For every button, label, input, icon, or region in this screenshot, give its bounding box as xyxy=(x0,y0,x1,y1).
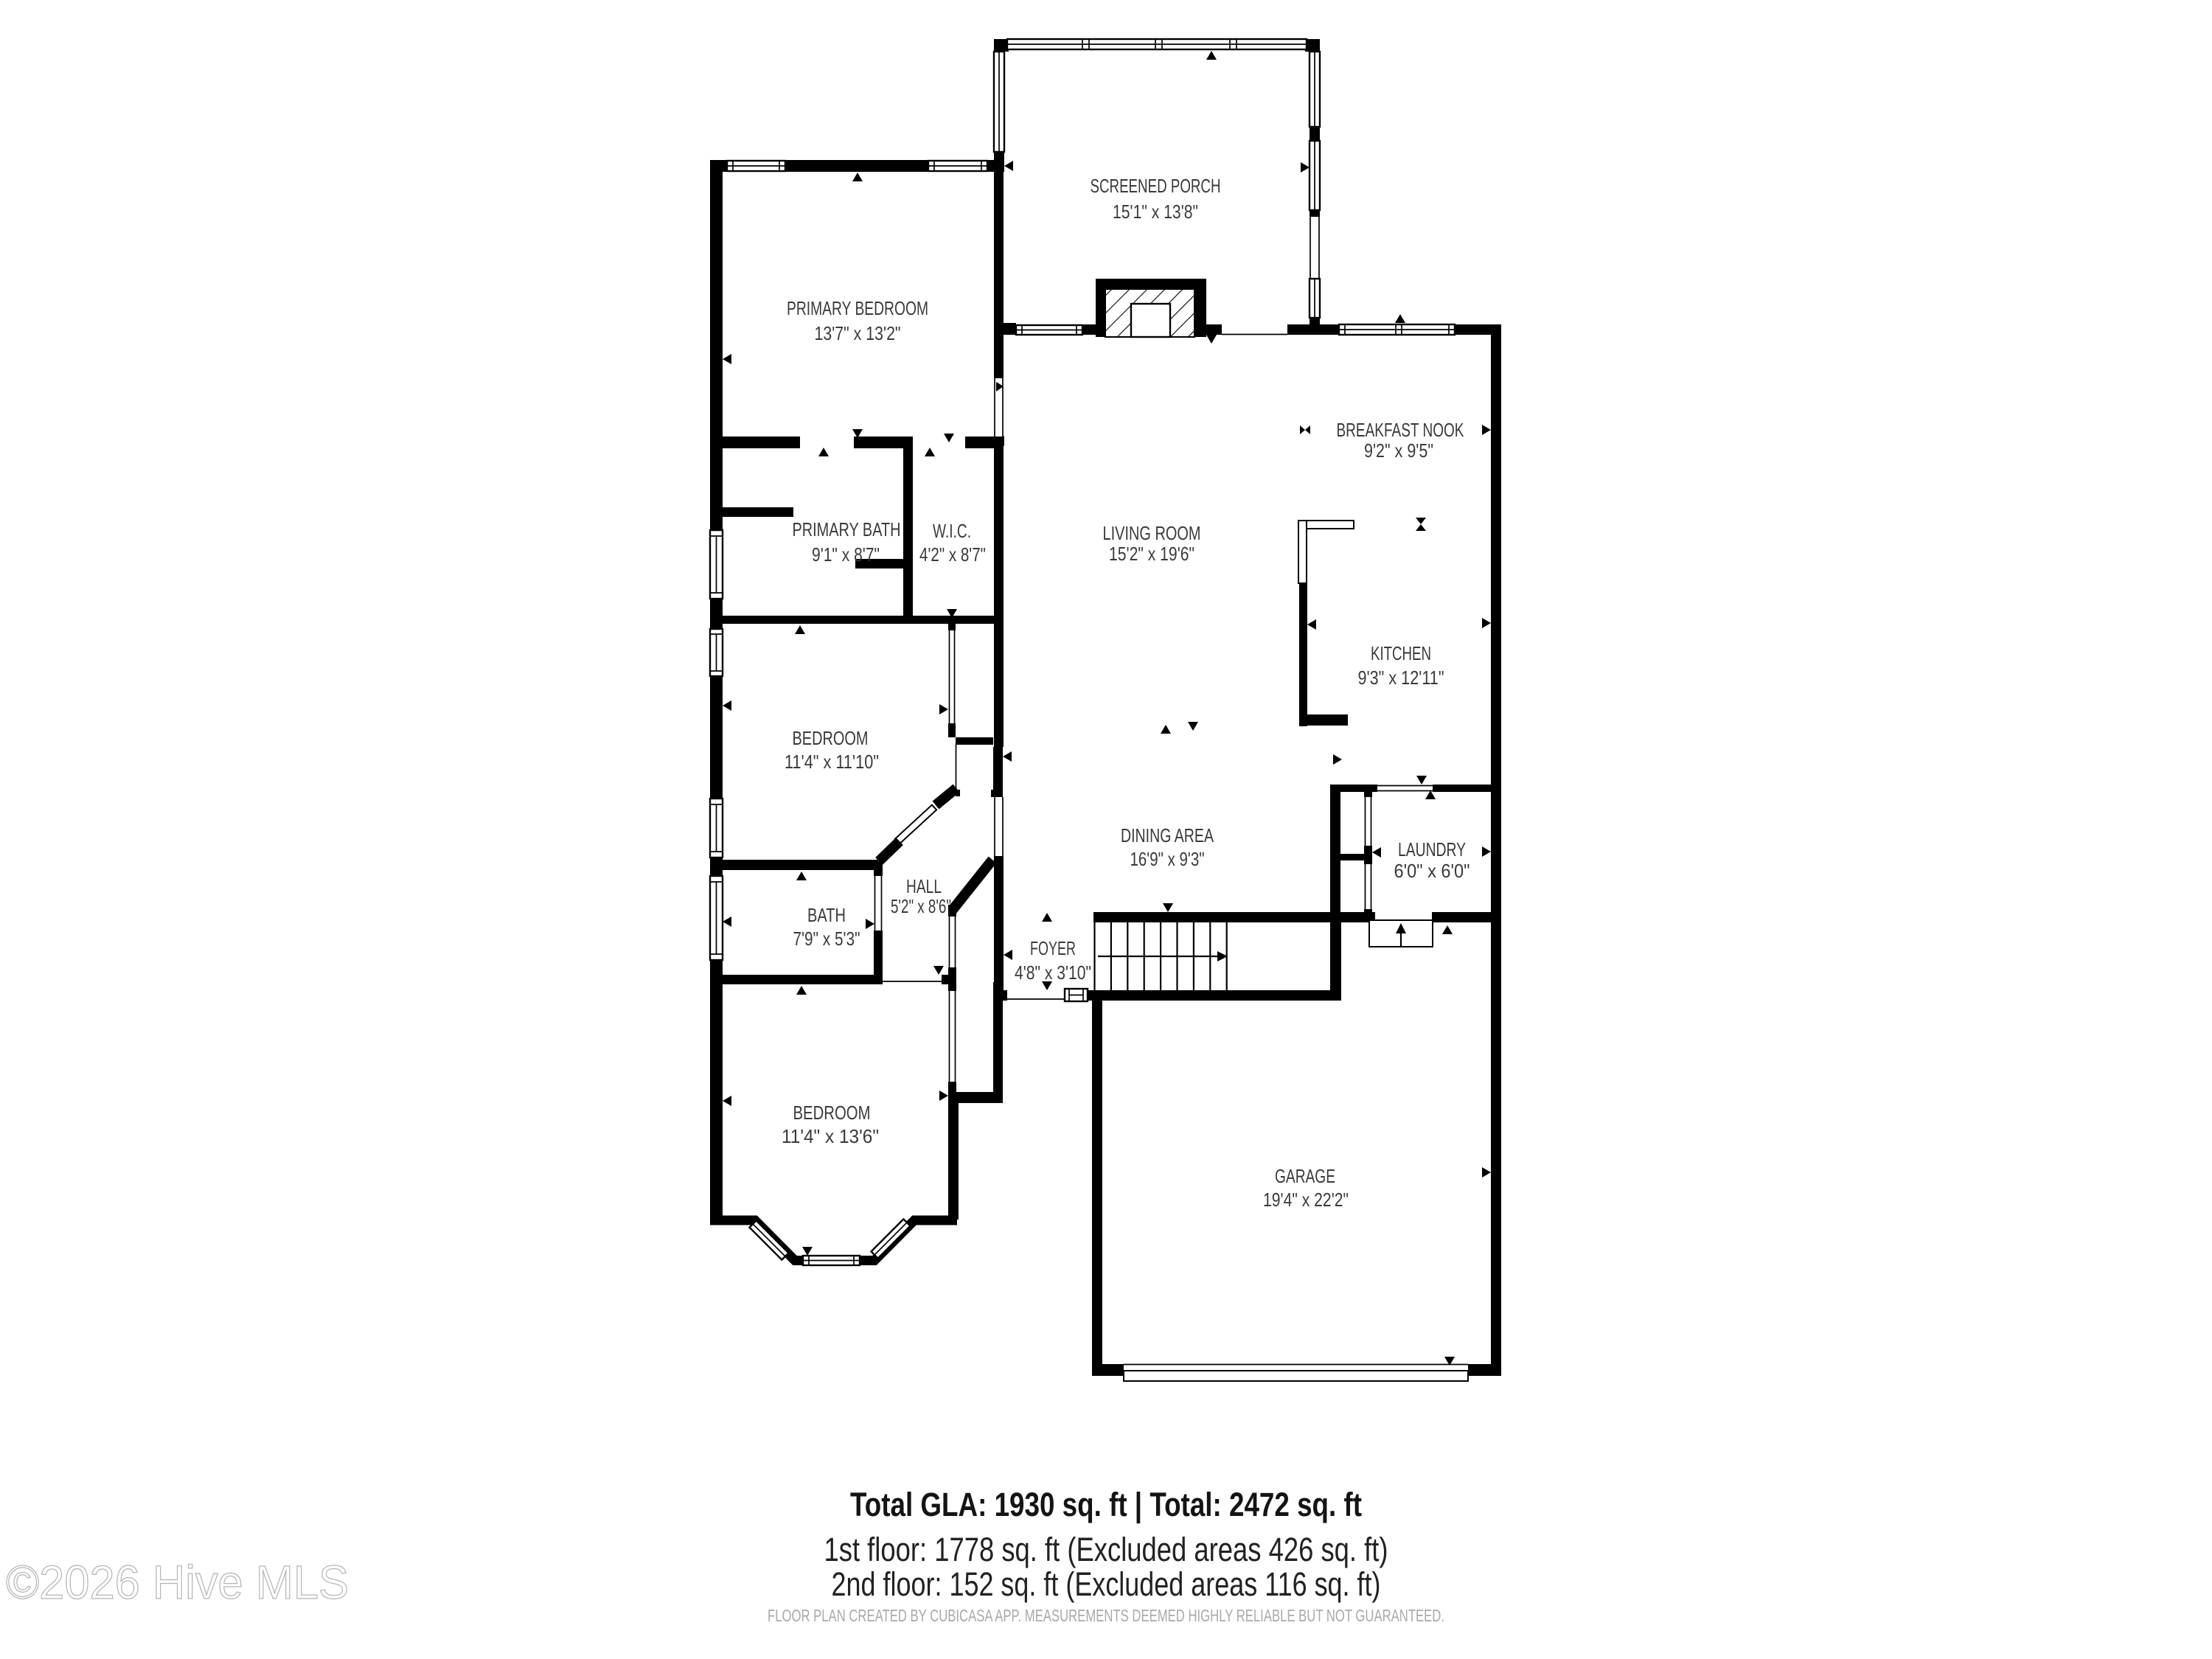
svg-text:HALL: HALL xyxy=(906,875,942,897)
svg-text:7'9" x 5'3": 7'9" x 5'3" xyxy=(793,928,860,950)
svg-text:Total GLA: 1930 sq. ft | Total: Total GLA: 1930 sq. ft | Total: 2472 sq.… xyxy=(850,1486,1362,1524)
svg-text:©2026 Hive MLS: ©2026 Hive MLS xyxy=(6,1556,349,1609)
svg-text:SCREENED PORCH: SCREENED PORCH xyxy=(1091,175,1221,197)
svg-text:16'9" x 9'3": 16'9" x 9'3" xyxy=(1130,848,1205,870)
svg-text:DINING AREA: DINING AREA xyxy=(1121,824,1214,846)
svg-text:LIVING ROOM: LIVING ROOM xyxy=(1103,522,1201,544)
svg-text:BEDROOM: BEDROOM xyxy=(793,727,869,749)
svg-text:W.I.C.: W.I.C. xyxy=(933,520,971,542)
svg-text:FLOOR PLAN CREATED BY CUBICASA: FLOOR PLAN CREATED BY CUBICASA APP. MEAS… xyxy=(768,1606,1444,1625)
svg-text:FOYER: FOYER xyxy=(1030,937,1076,959)
svg-text:15'1" x 13'8": 15'1" x 13'8" xyxy=(1113,201,1198,223)
svg-text:PRIMARY BEDROOM: PRIMARY BEDROOM xyxy=(787,297,928,319)
svg-text:BEDROOM: BEDROOM xyxy=(793,1102,871,1124)
svg-text:9'3" x 12'11": 9'3" x 12'11" xyxy=(1358,667,1444,689)
svg-text:19'4" x 22'2": 19'4" x 22'2" xyxy=(1263,1189,1349,1211)
svg-text:11'4" x 11'10": 11'4" x 11'10" xyxy=(785,751,879,773)
svg-text:BREAKFAST NOOK: BREAKFAST NOOK xyxy=(1337,419,1464,441)
svg-text:13'7" x 13'2": 13'7" x 13'2" xyxy=(815,322,901,344)
svg-text:5'2" x 8'6": 5'2" x 8'6" xyxy=(891,895,951,917)
svg-text:6'0" x 6'0": 6'0" x 6'0" xyxy=(1394,860,1470,882)
svg-text:1st floor: 1778 sq. ft (Exclud: 1st floor: 1778 sq. ft (Excluded areas 4… xyxy=(824,1531,1388,1568)
svg-text:4'8" x 3'10": 4'8" x 3'10" xyxy=(1015,961,1091,984)
svg-text:4'2" x 8'7": 4'2" x 8'7" xyxy=(919,543,986,566)
svg-text:11'4" x 13'6": 11'4" x 13'6" xyxy=(782,1125,879,1147)
svg-text:KITCHEN: KITCHEN xyxy=(1371,642,1431,664)
svg-text:PRIMARY BATH: PRIMARY BATH xyxy=(793,518,901,540)
svg-text:BATH: BATH xyxy=(807,904,846,926)
svg-text:15'2" x 19'6": 15'2" x 19'6" xyxy=(1109,543,1194,565)
svg-text:GARAGE: GARAGE xyxy=(1275,1165,1335,1187)
svg-text:LAUNDRY: LAUNDRY xyxy=(1398,838,1466,860)
svg-text:2nd floor: 152 sq. ft (Exclude: 2nd floor: 152 sq. ft (Excluded areas 11… xyxy=(832,1565,1381,1603)
svg-text:9'1" x 8'7": 9'1" x 8'7" xyxy=(812,543,880,566)
svg-text:9'2" x 9'5": 9'2" x 9'5" xyxy=(1364,439,1433,462)
